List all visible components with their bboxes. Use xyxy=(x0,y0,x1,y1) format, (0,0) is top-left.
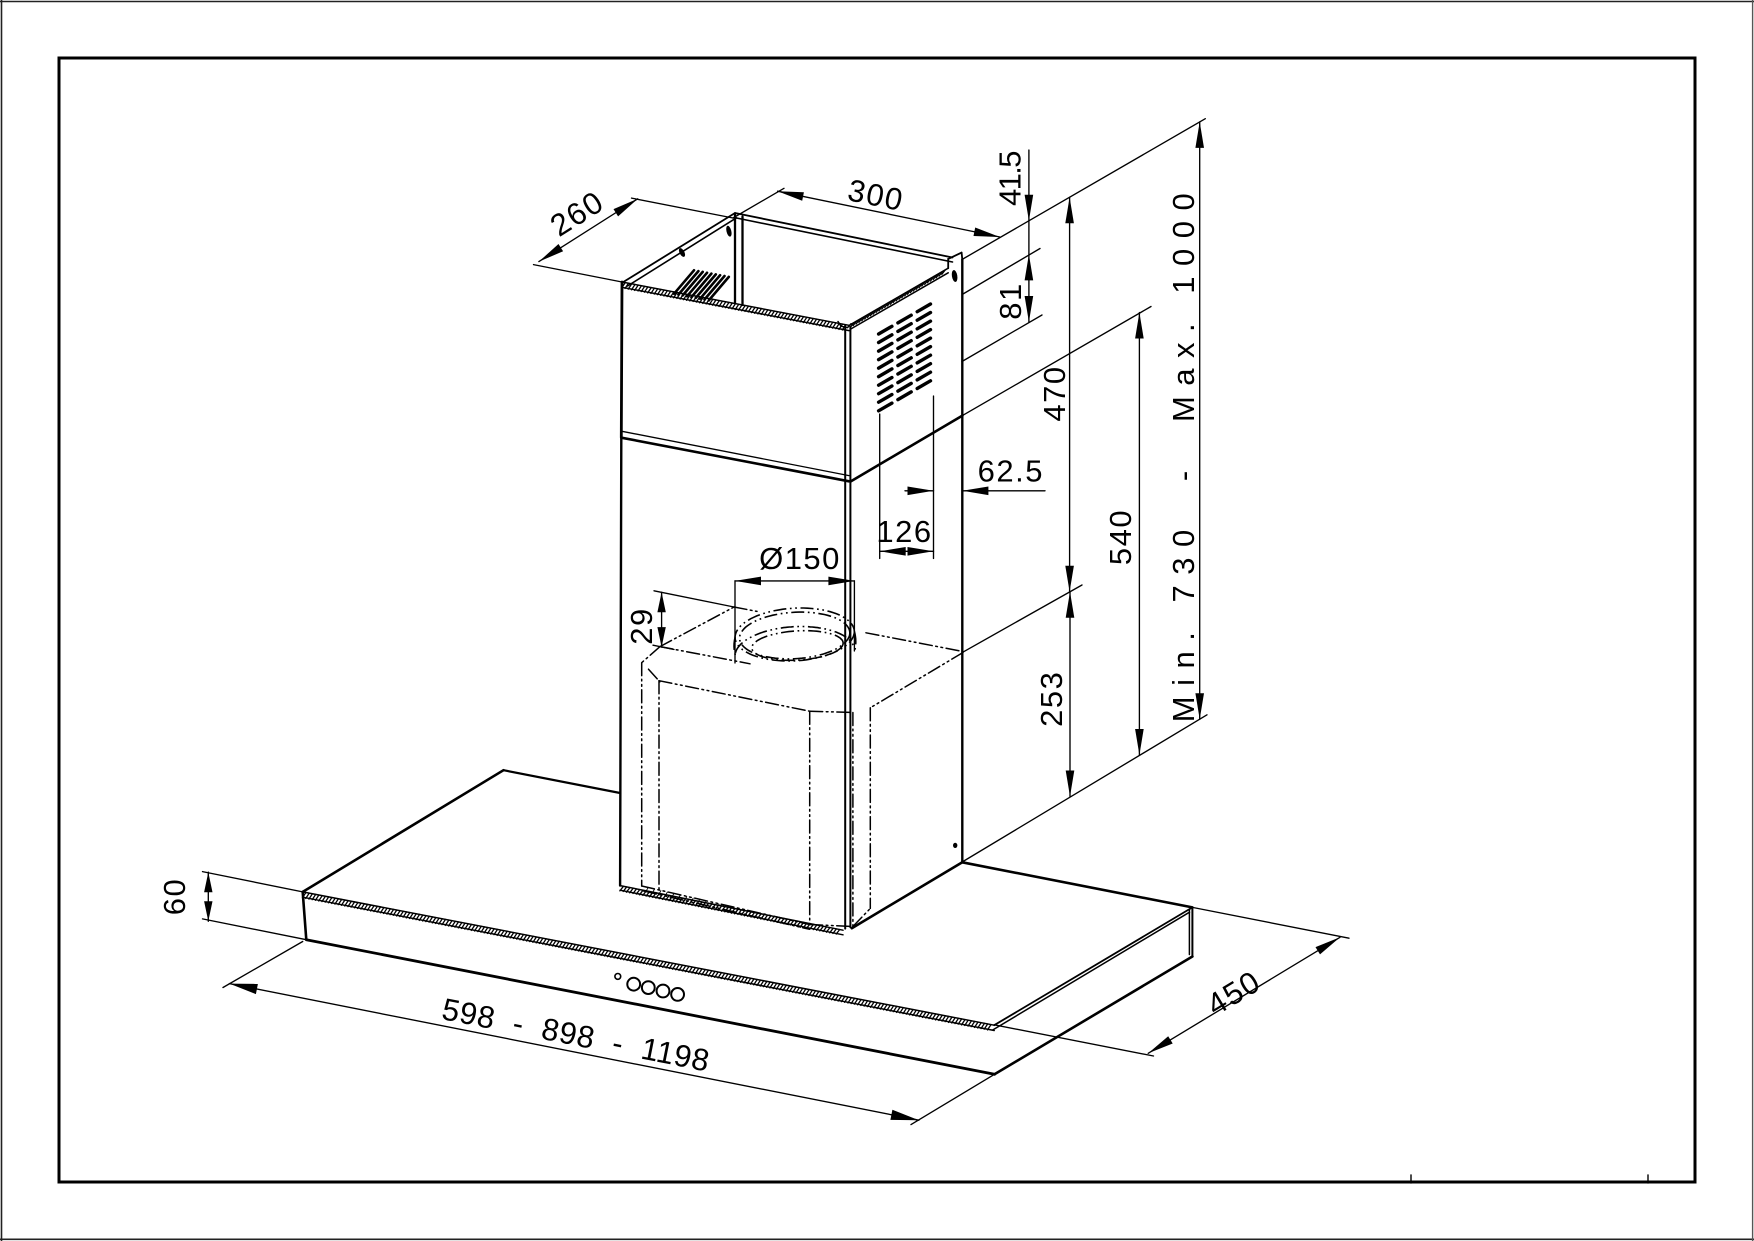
svg-text:60: 60 xyxy=(157,878,192,915)
svg-text:470: 470 xyxy=(1037,365,1072,421)
svg-text:62.5: 62.5 xyxy=(978,454,1044,489)
svg-text:540: 540 xyxy=(1103,509,1138,565)
svg-text:81: 81 xyxy=(993,282,1028,319)
svg-text:41.5: 41.5 xyxy=(993,149,1028,206)
svg-text:253: 253 xyxy=(1034,671,1069,727)
svg-text:29: 29 xyxy=(624,607,659,644)
svg-text:Ø150: Ø150 xyxy=(759,541,841,576)
svg-text:126: 126 xyxy=(876,514,932,549)
svg-text:Min. 730 - Max. 1000: Min. 730 - Max. 1000 xyxy=(1166,183,1201,722)
